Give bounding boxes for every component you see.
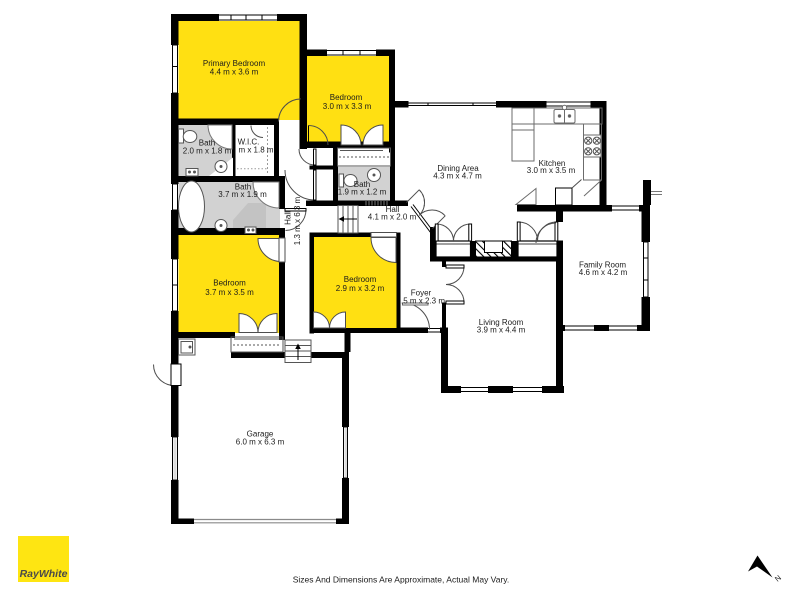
svg-text:Sizes And Dimensions Are Appro: Sizes And Dimensions Are Approximate, Ac… bbox=[293, 575, 510, 585]
svg-text:3.7 m x 3.5 m: 3.7 m x 3.5 m bbox=[205, 288, 254, 297]
svg-text:4.6 m x 4.2 m: 4.6 m x 4.2 m bbox=[579, 268, 628, 277]
svg-text:3.7 m x 1.9 m: 3.7 m x 1.9 m bbox=[218, 190, 267, 199]
svg-text:3.9 m x 4.4 m: 3.9 m x 4.4 m bbox=[477, 326, 526, 335]
svg-text:6.0 m x 6.3 m: 6.0 m x 6.3 m bbox=[236, 438, 285, 447]
svg-text:2.0 m x 1.8 m: 2.0 m x 1.8 m bbox=[183, 147, 232, 156]
svg-text:4.4 m x 3.6 m: 4.4 m x 3.6 m bbox=[210, 68, 259, 77]
svg-text:m x 1.8 m: m x 1.8 m bbox=[238, 146, 273, 155]
svg-text:3.0 m x 3.5 m: 3.0 m x 3.5 m bbox=[527, 166, 576, 175]
svg-text:4.1 m x 2.0 m: 4.1 m x 2.0 m bbox=[368, 213, 417, 222]
svg-text:RayWhite: RayWhite bbox=[20, 568, 68, 580]
svg-text:Bedroom: Bedroom bbox=[213, 279, 246, 288]
svg-text:Hall: Hall bbox=[284, 211, 293, 225]
svg-text:1.3 m x 6.3 m: 1.3 m x 6.3 m bbox=[293, 196, 302, 245]
svg-text:3.0 m x 3.3 m: 3.0 m x 3.3 m bbox=[323, 102, 372, 111]
svg-text:Bedroom: Bedroom bbox=[344, 275, 377, 284]
svg-text:Bedroom: Bedroom bbox=[330, 93, 363, 102]
svg-text:1.9 m x 1.2 m: 1.9 m x 1.2 m bbox=[338, 188, 387, 197]
svg-text:.5 m x 2.3 m: .5 m x 2.3 m bbox=[401, 297, 445, 306]
svg-text:4.3 m x 4.7 m: 4.3 m x 4.7 m bbox=[433, 172, 482, 181]
svg-text:2.9 m x 3.2 m: 2.9 m x 3.2 m bbox=[336, 284, 385, 293]
